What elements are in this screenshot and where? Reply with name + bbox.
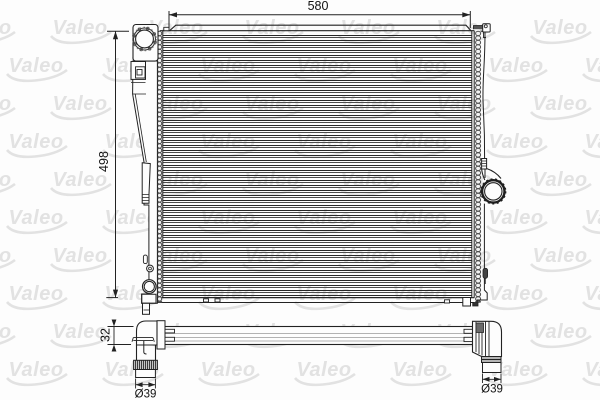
svg-text:32: 32 <box>99 328 113 342</box>
svg-text:498: 498 <box>97 151 111 172</box>
svg-text:580: 580 <box>308 0 329 13</box>
svg-text:Ø39: Ø39 <box>481 384 503 396</box>
svg-text:Ø39: Ø39 <box>135 389 157 400</box>
